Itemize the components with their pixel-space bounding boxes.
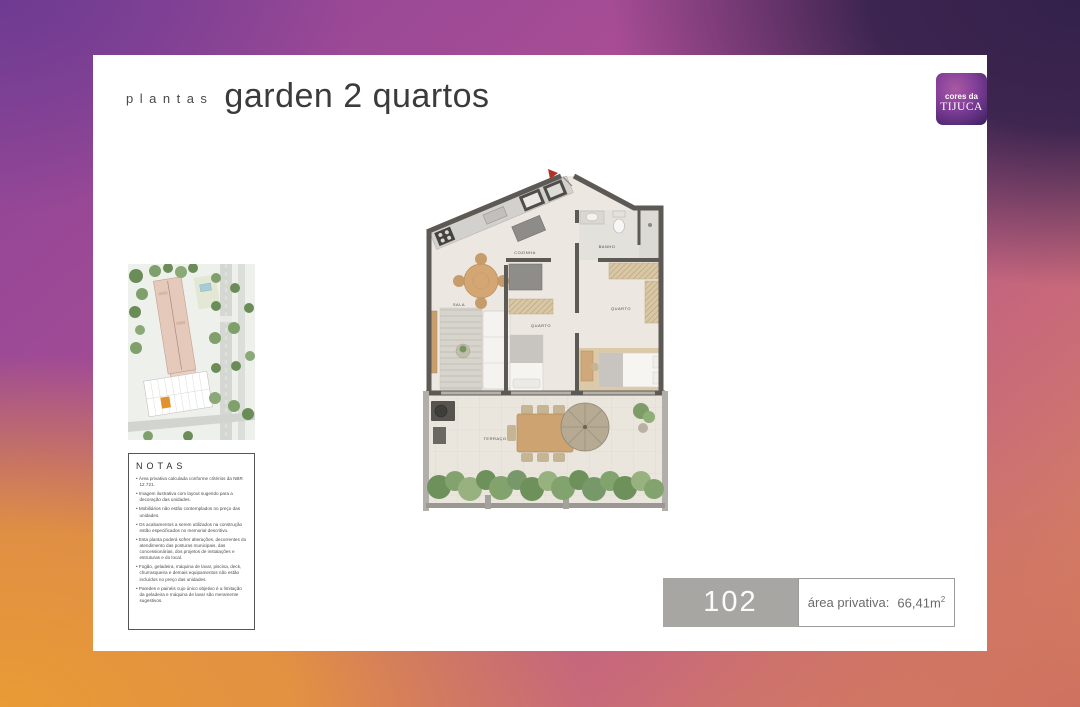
unit-area-box: área privativa: 66,41m2	[798, 578, 955, 627]
floorplan-image: COZINHA BANHO QUARTO QUARTO SALA TERRAÇO	[413, 165, 678, 523]
notes-title: NOTAS	[136, 461, 248, 471]
label-quarto-2: QUARTO	[531, 323, 551, 328]
background-gradient: plantas garden 2 quartos cores da TIJUCA	[0, 0, 1080, 707]
notes-box: NOTAS Área privativa calculada conforme …	[128, 453, 255, 630]
unit-area-value: 66,41m2	[897, 595, 945, 610]
shower-floor	[639, 210, 661, 260]
toilet-icon	[614, 219, 625, 233]
umbrella-icon	[561, 403, 609, 451]
note-item: Esta planta poderá sofrer alterações, de…	[136, 537, 248, 562]
label-cozinha: COZINHA	[514, 250, 536, 255]
note-item: Imagem ilustrativa com layout sugerido p…	[136, 491, 248, 503]
unit-number-box: 102	[663, 578, 798, 627]
logo-line1: cores da	[945, 93, 978, 101]
note-item: Área privativa calculada conforme critér…	[136, 476, 248, 488]
page-title: plantas garden 2 quartos	[126, 79, 490, 113]
page-card: plantas garden 2 quartos cores da TIJUCA	[93, 55, 987, 651]
page-title-kicker: plantas	[126, 91, 213, 113]
unit-number: 102	[703, 586, 757, 619]
note-item: Os acabamentos a serem utilizados na con…	[136, 522, 248, 534]
dining-table	[464, 264, 498, 298]
map-pool	[200, 283, 212, 292]
map-unit-highlight	[160, 396, 171, 408]
logo-line2: TIJUCA	[940, 101, 983, 114]
label-banho: BANHO	[599, 244, 616, 249]
label-terraco: TERRAÇO	[483, 436, 506, 441]
note-item: Paredes e painéis cujo único objetivo é …	[136, 586, 248, 605]
note-item: Fogão, geladeira, máquina de lavar, pisc…	[136, 564, 248, 583]
unit-area-superscript: 2	[941, 595, 945, 604]
page-title-main: garden 2 quartos	[224, 79, 489, 113]
label-sala: SALA	[453, 302, 465, 307]
unit-area-label: área privativa:	[808, 595, 890, 610]
label-quarto-1: QUARTO	[611, 306, 631, 311]
note-item: Mobiliários não estão contemplados no pr…	[136, 506, 248, 518]
cores-da-tijuca-logo: cores da TIJUCA	[936, 73, 987, 125]
site-location-map	[128, 264, 255, 440]
